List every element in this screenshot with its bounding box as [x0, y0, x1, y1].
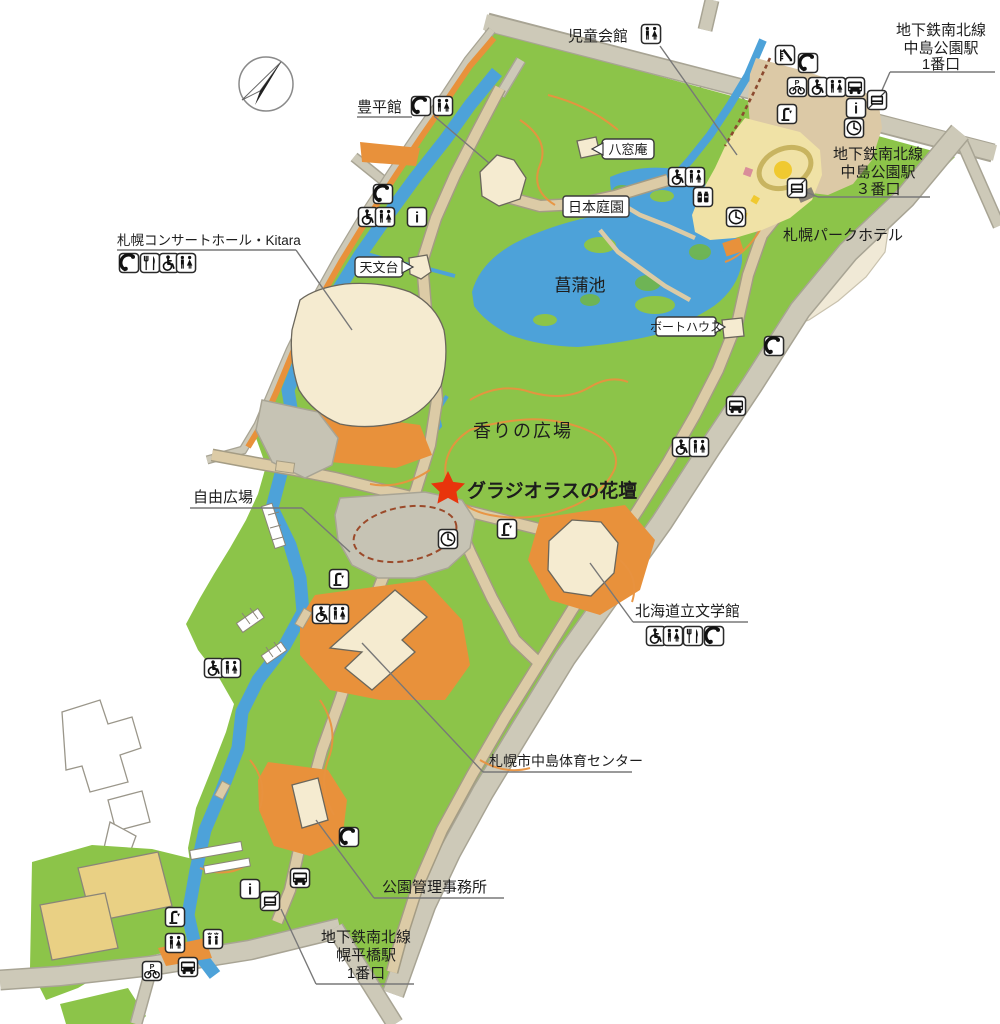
svg-text:1番口: 1番口	[347, 965, 385, 982]
compass-north-icon	[239, 57, 293, 111]
svg-text:地下鉄南北線: 地下鉄南北線	[896, 22, 986, 39]
bus-icon	[726, 396, 745, 415]
boathouse-callout: ボートハウス	[650, 317, 725, 336]
svg-text:地下鉄南北線: 地下鉄南北線	[833, 146, 923, 163]
toilet-icon	[375, 207, 394, 226]
vending-icon	[693, 187, 712, 206]
toilet-icon	[176, 253, 195, 272]
pond-island-3	[533, 314, 557, 326]
bus-icon	[178, 957, 197, 976]
toilet-icon	[685, 167, 704, 186]
phone-icon	[119, 253, 138, 272]
svg-text:中島公園駅: 中島公園駅	[903, 40, 978, 57]
fountain-icon	[497, 519, 516, 538]
toilet-icon	[221, 658, 240, 677]
wheelchair-icon	[312, 604, 331, 623]
kitara-building	[291, 283, 446, 426]
fountain-icon	[329, 569, 348, 588]
hoheikan-label: 豊平館	[357, 99, 402, 116]
info-icon	[407, 207, 426, 226]
toilet-icon	[826, 77, 845, 96]
svg-text:中島公園駅: 中島公園駅	[840, 164, 915, 181]
boathouse-building	[722, 318, 744, 338]
wheelchair-icon	[668, 167, 687, 186]
wheelchair-icon	[646, 626, 665, 645]
svg-text:３番口: ３番口	[855, 181, 900, 198]
toilet-icon	[641, 24, 660, 43]
svg-text:幌平橋駅: 幌平橋駅	[336, 947, 396, 964]
subway-icon	[867, 90, 886, 109]
shobuike-label: 菖蒲池	[555, 276, 606, 295]
toilet-icon	[663, 626, 682, 645]
bus-icon	[845, 77, 864, 96]
clock-icon	[726, 207, 745, 226]
shower-icon	[203, 929, 222, 948]
wheelchair-icon	[358, 207, 377, 226]
phone-icon	[411, 96, 430, 115]
wheelchair-icon	[808, 77, 827, 96]
wheelchair-icon	[159, 253, 178, 272]
jido-kaikan-label: 児童会館	[568, 27, 628, 45]
gladiolus-label: グラジオラスの花壇	[467, 479, 637, 502]
info-icon	[240, 879, 259, 898]
toilet-icon	[689, 437, 708, 456]
bicycle-icon	[142, 961, 161, 980]
clock-icon	[844, 118, 863, 137]
slide-icon	[775, 45, 794, 64]
restaurant-icon	[683, 626, 702, 645]
fountain-icon	[165, 907, 184, 926]
playground-mound	[774, 161, 792, 179]
phone-icon	[339, 827, 358, 846]
phone-icon	[373, 184, 392, 203]
svg-text:1番口: 1番口	[922, 56, 960, 73]
pond-island-2	[635, 296, 675, 314]
kitara-label: 札幌コンサートホール・Kitara	[117, 233, 301, 248]
clock-icon	[438, 529, 457, 548]
fountain-icon	[777, 104, 796, 123]
subway-icon	[787, 178, 806, 197]
toilet-icon	[165, 933, 184, 952]
bus-icon	[290, 868, 309, 887]
restaurant-icon	[140, 253, 159, 272]
station1-label: 地下鉄南北線 中島公園駅 1番口	[896, 22, 986, 73]
svg-text:地下鉄南北線: 地下鉄南北線	[321, 929, 411, 946]
info-icon	[846, 98, 865, 117]
nihon-teien-callout: 日本庭園	[563, 196, 629, 217]
map-canvas: i P	[0, 0, 1000, 1024]
wheelchair-icon	[204, 658, 223, 677]
bicycle-icon	[787, 77, 806, 96]
subway-icon	[260, 891, 279, 910]
jiyu-hiroba-label: 自由広場	[193, 489, 253, 506]
phone-icon	[704, 626, 723, 645]
garden-island	[650, 190, 674, 202]
tenmondai-label: 天文台	[359, 260, 398, 275]
park-hotel-label: 札幌パークホテル	[783, 227, 903, 244]
taiiku-center-label: 札幌市中島体育センター	[489, 753, 643, 769]
phone-icon	[764, 336, 783, 355]
west-building-1	[62, 700, 141, 792]
wheelchair-icon	[672, 437, 691, 456]
kanri-jimusho-label: 公園管理事務所	[382, 879, 487, 896]
boathouse-label: ボートハウス	[650, 320, 722, 334]
toilet-icon	[329, 604, 348, 623]
sw-building-2	[40, 893, 118, 960]
bungakukan-label: 北海道立文学館	[635, 603, 740, 620]
hassoan-label: 八窓庵	[608, 142, 647, 157]
toilet-icon	[433, 96, 452, 115]
nihon-teien-label: 日本庭園	[568, 199, 624, 215]
park-map: i P	[0, 0, 1000, 1024]
phone-icon	[798, 53, 817, 72]
kaori-hiroba-label: 香りの広場	[473, 421, 573, 441]
